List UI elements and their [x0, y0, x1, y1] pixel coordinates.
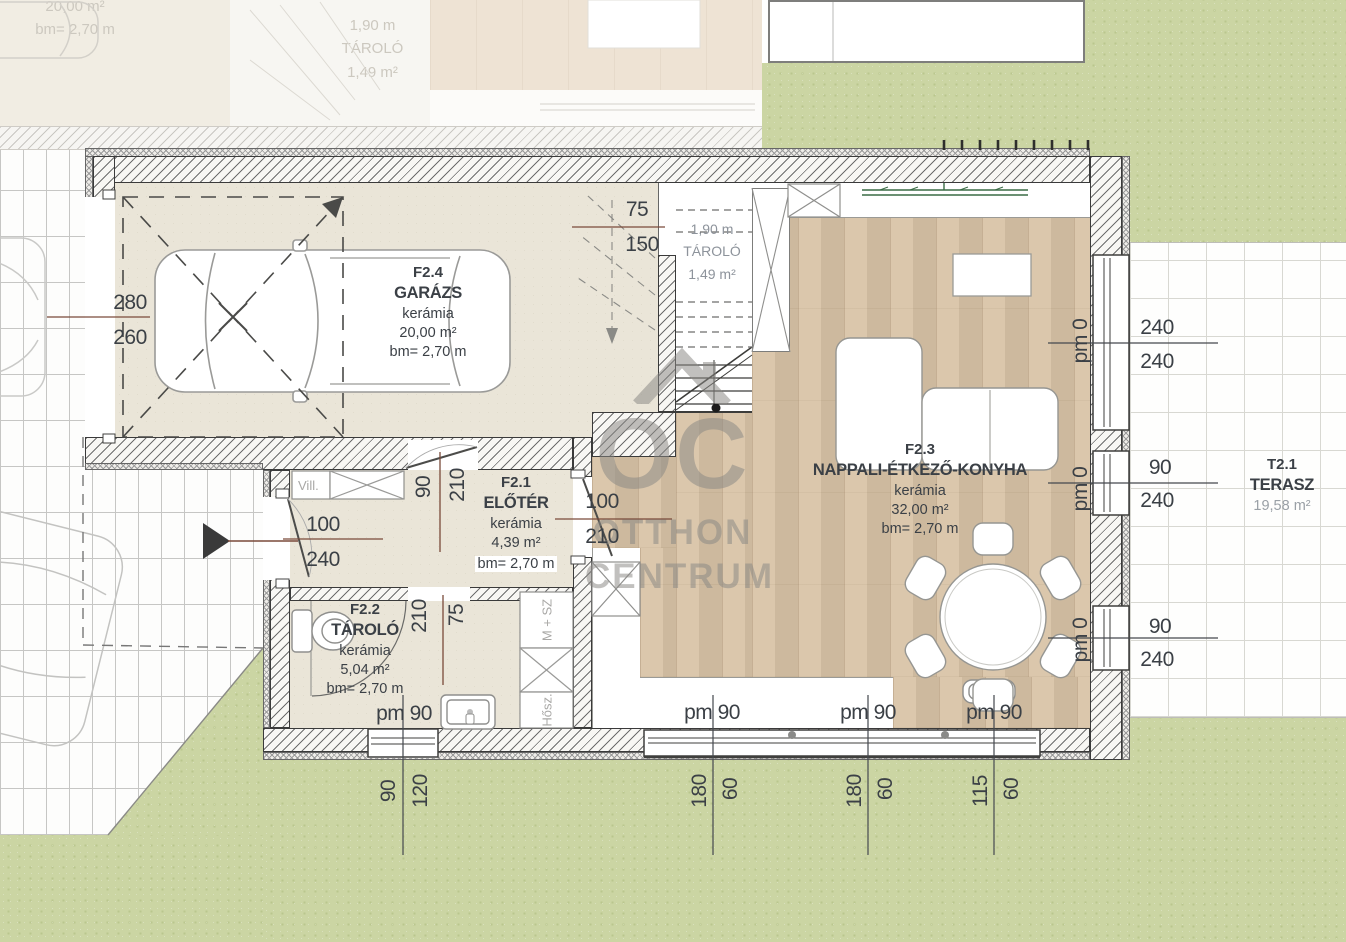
- dim-label: 210: [446, 468, 470, 502]
- dim-label: 180: [843, 774, 867, 808]
- dim-label: 75: [445, 604, 469, 626]
- dim-label: 90: [377, 780, 401, 802]
- dim-label: 90: [1149, 615, 1171, 639]
- floor-plan: 20,00 m² bm= 2,70 m 1,90 m TÁROLÓ 1,49 m…: [0, 0, 1346, 942]
- dim-label: 90: [1149, 456, 1171, 480]
- dim-label: pm 90: [376, 702, 432, 726]
- dim-label: 60: [1000, 778, 1024, 800]
- dim-label: 150: [625, 233, 659, 257]
- dim-label: pm 90: [684, 701, 740, 725]
- dim-label: 60: [719, 778, 743, 800]
- dim-label: 240: [1140, 350, 1174, 374]
- dim-label: 210: [408, 599, 432, 633]
- dim-label: 280: [113, 291, 147, 315]
- dim-label: 240: [1140, 316, 1174, 340]
- dim-label: pm 0: [1069, 467, 1093, 512]
- dimension-labels: 2802607515010024090210100210210752402409…: [0, 0, 1346, 942]
- dim-label: 240: [1140, 648, 1174, 672]
- dim-label: pm 90: [840, 701, 896, 725]
- dim-label: 120: [409, 774, 433, 808]
- dim-label: 75: [626, 198, 648, 222]
- dim-label: 210: [585, 525, 619, 549]
- dim-label: 260: [113, 326, 147, 350]
- dim-label: pm 0: [1069, 319, 1093, 364]
- dim-label: 100: [306, 513, 340, 537]
- dim-label: 100: [585, 490, 619, 514]
- dim-label: 60: [874, 778, 898, 800]
- dim-label: 90: [412, 476, 436, 498]
- dim-label: 115: [969, 775, 993, 807]
- dim-label: 180: [688, 774, 712, 808]
- dim-label: pm 90: [966, 701, 1022, 725]
- dim-label: 240: [1140, 489, 1174, 513]
- dim-label: pm 0: [1069, 618, 1093, 663]
- dim-label: 240: [306, 548, 340, 572]
